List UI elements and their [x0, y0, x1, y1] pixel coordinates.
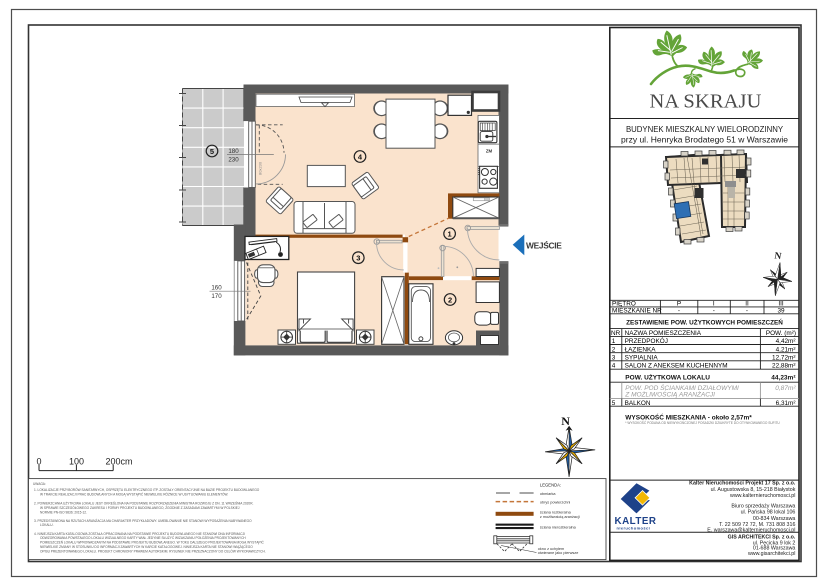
svg-text:SALON Z ANEKSEM KUCHENNYM: SALON Z ANEKSEM KUCHENNYM	[625, 363, 728, 370]
svg-text:180: 180	[228, 148, 239, 155]
svg-text:6,31m²: 6,31m²	[776, 400, 796, 407]
svg-text:W SPRAWIE SZCZEGÓŁOWEGO ZAKRES: W SPRAWIE SZCZEGÓŁOWEGO ZAKRESU I FORMY …	[40, 505, 240, 510]
svg-text:5: 5	[210, 147, 214, 156]
svg-text:POW. POD ŚCIANKAMI DZIAŁOWYMI: POW. POD ŚCIANKAMI DZIAŁOWYMI	[625, 383, 739, 392]
svg-text:170: 170	[211, 293, 222, 300]
svg-text:NA SKRAJU: NA SKRAJU	[650, 91, 762, 113]
svg-text:2: 2	[612, 346, 616, 353]
svg-text:WYSOKOŚĆ MIESZKANIA - około 2,: WYSOKOŚĆ MIESZKANIA - około 2,57m*	[625, 412, 752, 421]
svg-text:160: 160	[211, 285, 222, 292]
svg-text:N: N	[561, 414, 570, 428]
svg-text:POW. (m²): POW. (m²)	[766, 330, 796, 337]
svg-text:ul. Pańska 98 lokal 106: ul. Pańska 98 lokal 106	[741, 510, 796, 516]
svg-text:-: -	[678, 307, 680, 314]
svg-text:4: 4	[612, 363, 616, 370]
svg-text:przy ul. Henryka Brodatego 51: przy ul. Henryka Brodatego 51 w Warszawi…	[621, 135, 788, 145]
svg-text:ZESTAWIENIE POW. UŻYTKOWYCH PO: ZESTAWIENIE POW. UŻYTKOWYCH POMIESZCZEŃ	[626, 318, 783, 327]
svg-text:PRZEDPOKÓJ: PRZEDPOKÓJ	[625, 336, 668, 345]
svg-text:Biuro sprzedaży Warszawa: Biuro sprzedaży Warszawa	[731, 504, 795, 510]
svg-text:ściana rozbieralna: ściana rozbieralna	[540, 511, 572, 515]
svg-text:www.gisarchitekci.pl: www.gisarchitekci.pl	[748, 551, 795, 557]
svg-text:otwierane jako pierwsze: otwierane jako pierwsze	[538, 551, 579, 555]
svg-text:00-834 Warszawa: 00-834 Warszawa	[753, 516, 796, 522]
svg-text:80x230: 80x230	[258, 161, 263, 175]
svg-text:ŁAZIENKA: ŁAZIENKA	[625, 346, 657, 353]
svg-text:BALKON: BALKON	[625, 400, 651, 407]
svg-text:LEGENDA:: LEGENDA:	[540, 482, 561, 487]
svg-text:OPISU PREZENTOWANEGO LOKALU. P: OPISU PREZENTOWANEGO LOKALU. PROJEKT CHR…	[40, 548, 266, 553]
svg-text:WEJŚCIE: WEJŚCIE	[526, 239, 562, 250]
svg-text:BUDYNEK MIESZKALNY WIELORODZIN: BUDYNEK MIESZKALNY WIELORODZINNY	[626, 125, 784, 134]
svg-text:4. NINIEJSZA KARTA KATALOGOW: 4. NINIEJSZA KARTA KATALOGOWA ZOSTAŁA OP…	[34, 532, 245, 536]
svg-text:W TRAKCIE REALIZACJI PRAC BUDO: W TRAKCIE REALIZACJI PRAC BUDOWLANYCH A …	[40, 491, 228, 496]
svg-text:3. PRZEDSTAWIONA NA RZUTACH: 3. PRZEDSTAWIONA NA RZUTACH ARANŻACJA MA…	[34, 518, 252, 523]
svg-text:obrys powierzchni: obrys powierzchni	[540, 501, 571, 505]
svg-text:2: 2	[448, 296, 452, 305]
svg-text:1: 1	[612, 338, 616, 345]
svg-text:ściana nierozbieralna: ściana nierozbieralna	[540, 526, 577, 530]
svg-text:UWAGA:: UWAGA:	[33, 482, 46, 486]
svg-text:3: 3	[612, 354, 616, 361]
svg-text:obmiarka: obmiarka	[540, 492, 557, 496]
svg-text:MIESZKANIE NR: MIESZKANIE NR	[612, 307, 662, 314]
svg-text:* WYSOKOŚĆ PODANA OD NIEWYKOŃC: * WYSOKOŚĆ PODANA OD NIEWYKOŃCZONEJ POSA…	[625, 420, 780, 425]
svg-text:1: 1	[448, 230, 452, 239]
svg-text:12,72m²: 12,72m²	[772, 354, 795, 361]
svg-text:ZM: ZM	[486, 148, 493, 153]
svg-text:ul. Augustowska 8, 15-218 Biał: ul. Augustowska 8, 15-218 Białystok	[711, 487, 796, 493]
svg-text:SYPIALNIA: SYPIALNIA	[625, 354, 659, 361]
svg-text:www.kalternieruchomosci.pl: www.kalternieruchomosci.pl	[730, 493, 795, 499]
svg-text:2. POWIERZCHNIA UŻYTKOWA LOK: 2. POWIERZCHNIA UŻYTKOWA LOKALU JEST OKR…	[34, 501, 253, 506]
svg-text:ODWZOROWANIA POWSTAŁEGO LOKALU: ODWZOROWANIA POWSTAŁEGO LOKALU WIZUALNEG…	[40, 535, 246, 540]
svg-text:Z MOŻLIWOŚCIĄ ARANŻACJI: Z MOŻLIWOŚCIĄ ARANŻACJI	[624, 390, 715, 399]
svg-text:z możliwością aranżacji: z możliwością aranżacji	[540, 515, 580, 519]
svg-text:okno z uchyłem: okno z uchyłem	[538, 547, 564, 551]
svg-text:nieruchomości: nieruchomości	[617, 526, 651, 531]
svg-text:LOKALU.: LOKALU.	[40, 523, 54, 527]
svg-text:4,42m²: 4,42m²	[776, 338, 796, 345]
svg-text:NR: NR	[611, 330, 621, 337]
svg-text:39: 39	[777, 307, 785, 314]
svg-text:POMIESZCZEŃ LOKALU WPROWADZANY: POMIESZCZEŃ LOKALU WPROWADZANYM NA PODST…	[40, 540, 264, 545]
svg-text:5: 5	[612, 400, 616, 407]
svg-text:NORMIE PN-ISO 9836: 2015-12.: NORMIE PN-ISO 9836: 2015-12.	[40, 510, 87, 514]
svg-text:POW. UŻYTKOWA LOKALU: POW. UŻYTKOWA LOKALU	[625, 373, 710, 381]
svg-text:Kalter Nieruchomości Projekt 1: Kalter Nieruchomości Projekt 17 Sp. z o.…	[689, 481, 796, 487]
svg-text:0,87m²: 0,87m²	[775, 385, 796, 392]
svg-text:NIEWIELKIE ZMIANY W STOSUNKU D: NIEWIELKIE ZMIANY W STOSUNKU DO INFORMAC…	[40, 544, 253, 549]
svg-text:E. warszawa@kalternieruchomosc: E. warszawa@kalternieruchomosci.pl	[707, 527, 795, 533]
svg-text:44,23m²: 44,23m²	[771, 374, 796, 381]
svg-text:200cm: 200cm	[105, 457, 132, 467]
svg-text:-: -	[713, 307, 715, 314]
svg-text:1. LOKALIZACJE PRZYBORÓW SAN: 1. LOKALIZACJE PRZYBORÓW SANITARNYCH, OS…	[34, 487, 260, 492]
svg-text:4,21m²: 4,21m²	[776, 346, 796, 353]
svg-text:3: 3	[356, 254, 360, 263]
svg-text:230: 230	[228, 157, 239, 164]
svg-text:-: -	[746, 307, 748, 314]
svg-text:NAZWA POMIESZCZENIA: NAZWA POMIESZCZENIA	[625, 330, 702, 337]
svg-text:22,88m²: 22,88m²	[772, 363, 795, 370]
